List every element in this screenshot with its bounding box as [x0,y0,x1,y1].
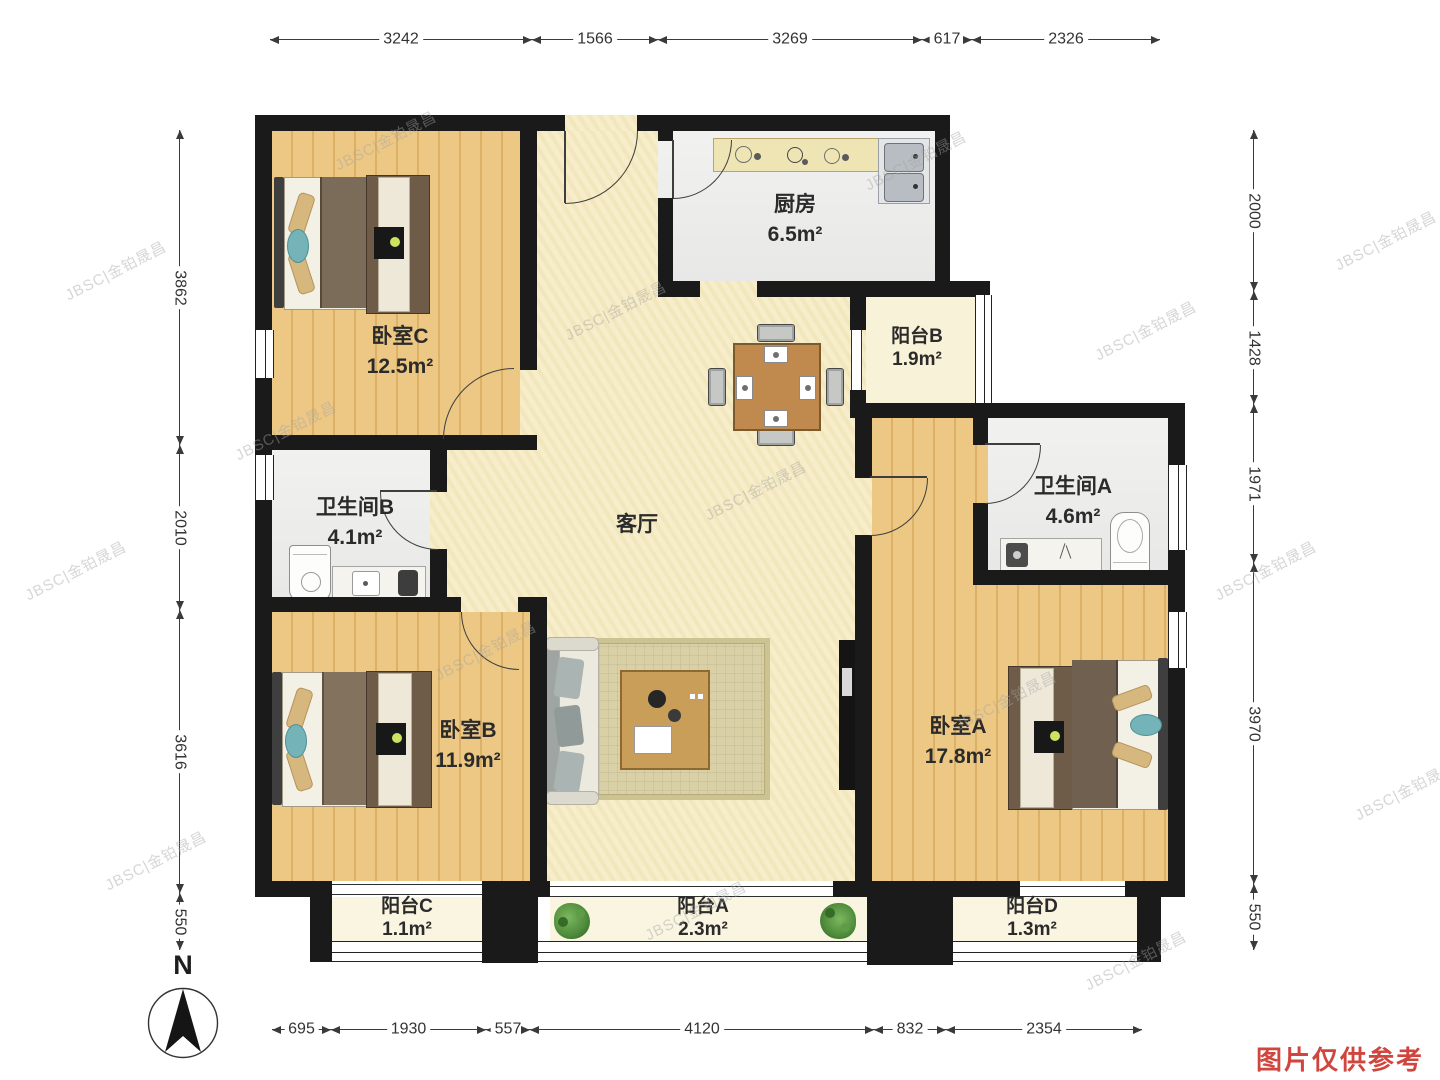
north-label: N [146,948,220,983]
window [255,455,274,500]
wall-segment [255,115,565,131]
room-label-bathroom-b: 卫生间B 4.1m² [285,493,425,554]
bed-headboard [1158,658,1168,810]
disclaimer-text: 图片仅供参考 [1256,1040,1440,1077]
room-name: 阳台B [865,326,969,349]
dimension-label: 3616 [171,730,189,774]
dimension-top-1: 3242 [270,39,532,40]
dimension-label: 1930 [387,1019,431,1038]
room-name: 阳台A [633,896,773,919]
dimension-right-1: 2000 [1253,130,1254,291]
sink [1006,543,1028,567]
wall-segment [637,115,950,131]
door-leaf [870,476,927,478]
dimension-label: 557 [491,1019,526,1038]
dimension-bottom-1: 695 [272,1029,331,1030]
dimension-bottom-2: 1930 [331,1029,486,1030]
wall-segment [973,503,988,570]
compass: N [146,948,220,1064]
room-label-kitchen: 厨房 6.5m² [725,190,865,251]
dining-chair [708,368,726,406]
room-label-balcony-a: 阳台A 2.3m² [633,896,773,942]
balcony-window [332,941,482,962]
cushion [1130,714,1162,736]
napkin [698,694,703,699]
wall-segment [255,500,272,897]
dimension-label: 550 [171,904,189,939]
wall-segment [1168,403,1185,465]
wall-pillar [867,881,953,965]
dimension-top-5: 2326 [972,39,1160,40]
room-name: 客厅 [597,510,677,540]
dimension-label: 1428 [1245,326,1263,370]
dimension-label: 2000 [1245,189,1263,233]
place-setting [764,346,788,363]
watermark-text: JBSC|金铂晟昌 [1351,756,1440,825]
wall-segment [658,281,700,297]
dimension-right-4: 3970 [1253,563,1254,884]
room-area: 1.1m² [342,919,472,942]
dimension-right-5: 550 [1253,884,1254,950]
sink-basin [884,143,924,172]
door-leaf [672,140,674,198]
wall-segment [973,418,988,445]
wall-pillar [482,881,538,963]
stove-knob-icon [754,153,761,160]
watermark-text: JBSC|金铂晟昌 [1331,206,1440,275]
room-area: 17.8m² [883,742,1033,772]
stove-burner-icon [824,148,840,164]
outside-area [990,115,1185,403]
room-area: 2.3m² [633,919,773,942]
dimension-bottom-5: 832 [874,1029,946,1030]
balcony-window [538,941,874,962]
dimension-right-2: 1428 [1253,291,1254,404]
room-name: 卧室B [393,716,543,746]
door-leaf [564,131,566,203]
cushion [287,229,309,263]
dining-chair [757,324,795,342]
napkin [690,694,695,699]
window [1168,465,1187,550]
room-label-balcony-d: 阳台D 1.3m² [962,896,1102,942]
room-name: 卧室C [330,322,470,352]
stove-burner-icon [735,146,752,163]
dimension-label: 2326 [1044,29,1088,48]
bed-blanket [320,177,368,308]
dimension-left-4: 550 [179,893,180,950]
room-area: 11.9m² [393,746,543,776]
room-label-bathroom-a: 卫生间A 4.6m² [998,472,1148,533]
sink [352,571,380,596]
room-label-bedroom-b: 卧室B 11.9m² [393,716,543,777]
room-label-bedroom-c: 卧室C 12.5m² [330,322,470,383]
room-name: 阳台C [342,896,472,919]
sofa-cushion [554,705,585,748]
stove-knob-icon [802,159,808,165]
dimension-label: 550 [1245,900,1263,935]
dimension-top-3: 3269 [658,39,922,40]
wall-segment [855,535,872,897]
dimension-right-3: 1971 [1253,404,1254,563]
wall-segment [850,403,1185,418]
cushion [285,724,307,758]
dimension-left-3: 3616 [179,610,180,893]
bed-blanket [322,672,368,805]
place-setting [736,376,753,400]
sofa-armrest [545,791,599,805]
wall-segment [935,115,950,295]
wall-segment [520,115,537,370]
wall-pillar [310,888,332,962]
dimension-bottom-4: 4120 [530,1029,874,1030]
entry-threshold [565,115,637,131]
room-area: 12.5m² [330,352,470,382]
dimension-bottom-6: 2354 [946,1029,1142,1030]
bed-headboard [274,177,284,308]
watermark-text: JBSC|金铂晟昌 [1211,536,1320,605]
wall-segment [255,597,461,612]
dimension-bottom-3: 557 [486,1029,530,1030]
stove-burner-icon [787,147,803,163]
dimension-label: 1971 [1245,462,1263,506]
dimension-label: 832 [893,1019,928,1038]
kettle-icon [648,690,666,708]
dimension-left-2: 2010 [179,445,180,610]
dimension-label: 3242 [379,29,423,48]
bowl-icon [668,709,681,722]
dimension-label: 617 [930,29,965,48]
room-label-balcony-b: 阳台B 1.9m² [865,326,969,372]
sofa-armrest [545,637,599,651]
sofa-cushion [553,656,584,699]
coffee-table [620,670,710,770]
sliding-door [332,884,482,895]
bed-headboard [272,672,282,805]
room-area: 4.6m² [998,502,1148,532]
door-leaf [380,490,437,492]
balcony-window [948,941,1148,962]
wardrobe-tv-panel [374,227,404,259]
wall-segment [833,881,867,897]
dimension-label: 4120 [680,1019,724,1038]
north-arrow-icon [146,983,220,1059]
tray [634,726,672,754]
room-label-balcony-c: 阳台C 1.1m² [342,896,472,942]
sink-basin [884,173,924,202]
wardrobe-tv-panel [1034,721,1064,753]
door-leaf [985,443,1040,445]
wall-segment [850,281,866,330]
dimension-label: 3862 [171,266,189,310]
room-area: 6.5m² [725,220,865,250]
room-name: 阳台D [962,896,1102,919]
window [975,295,992,403]
plant-icon [820,903,856,939]
dimension-label: 3970 [1245,702,1263,746]
wall-segment [973,570,1185,585]
stove-knob-icon [842,154,849,161]
room-label-bedroom-a: 卧室A 17.8m² [883,712,1033,773]
window [1168,612,1187,668]
room-name: 卫生间A [998,472,1148,502]
dimension-label: 1566 [573,29,617,48]
room-name: 卫生间B [285,493,425,523]
wall-segment [518,597,547,612]
floor-plan-canvas: 卧室C 12.5m² 厨房 6.5m² 阳台B 1.9m² 卫生间B 4.1m²… [0,0,1440,1080]
room-area: 1.9m² [865,349,969,372]
room-area: 1.3m² [962,919,1102,942]
room-area: 4.1m² [285,523,425,553]
window [255,330,274,378]
room-label-living-room: 客厅 [597,510,677,540]
room-name: 卧室A [883,712,1033,742]
wall-segment [430,450,447,492]
wall-segment [953,881,1020,897]
dimension-top-4: 617 [922,39,972,40]
wall-segment [658,131,673,141]
wall-segment [855,418,872,478]
plant-icon [554,903,590,939]
dimension-label: 3269 [768,29,812,48]
watermark-text: JBSC|金铂晟昌 [101,826,210,895]
wall-pillar [1137,888,1161,962]
outside-area [950,115,990,281]
watermark-text: JBSC|金铂晟昌 [21,536,130,605]
watermark-text: JBSC|金铂晟昌 [61,236,170,305]
dimension-label: 2010 [171,506,189,550]
place-setting [799,376,816,400]
wall-segment [255,115,272,330]
dimension-label: 695 [284,1019,319,1038]
place-setting [764,410,788,427]
dimension-left-1: 3862 [179,130,180,445]
bed-blanket [1072,660,1118,808]
wall-segment [757,281,893,297]
bathroom-fixture [398,570,418,596]
tv-screen [842,668,852,696]
dimension-label: 2354 [1022,1019,1066,1038]
room-name: 厨房 [725,190,865,220]
dimension-top-2: 1566 [532,39,658,40]
sliding-door [851,330,862,390]
dining-chair [826,368,844,406]
wall-segment [538,881,550,897]
wall-segment [1168,668,1185,897]
